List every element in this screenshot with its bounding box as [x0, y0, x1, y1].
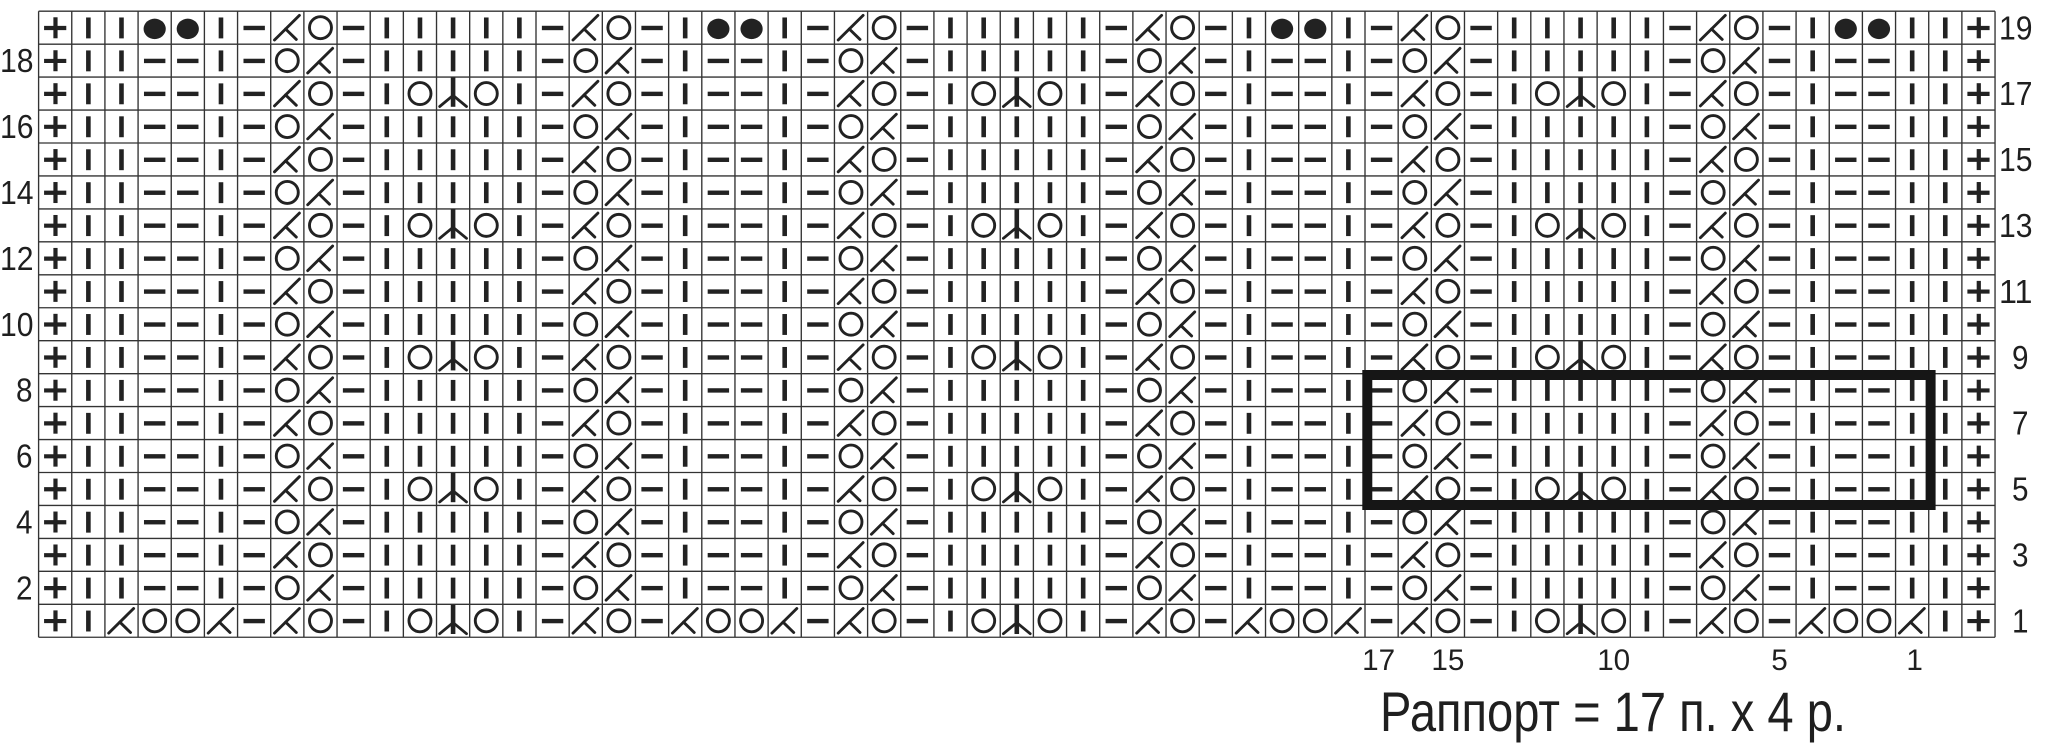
svg-text:3: 3: [2012, 538, 2029, 575]
svg-text:7: 7: [2012, 406, 2029, 443]
svg-text:5: 5: [2012, 472, 2029, 509]
svg-text:16: 16: [0, 109, 34, 146]
svg-text:1: 1: [1906, 644, 1923, 677]
svg-text:18: 18: [0, 43, 34, 80]
svg-text:11: 11: [1999, 274, 2033, 311]
svg-text:5: 5: [1771, 644, 1788, 677]
svg-text:2: 2: [16, 570, 33, 607]
svg-text:19: 19: [1999, 10, 2033, 47]
svg-text:12: 12: [0, 241, 34, 278]
svg-text:8: 8: [16, 373, 33, 410]
svg-text:4: 4: [16, 505, 33, 542]
svg-text:17: 17: [1999, 76, 2033, 113]
svg-text:17: 17: [1362, 644, 1395, 677]
svg-text:10: 10: [1597, 644, 1630, 677]
svg-text:Раппорт = 17 п. х 4 р.: Раппорт = 17 п. х 4 р.: [1380, 681, 1846, 743]
svg-text:10: 10: [0, 307, 34, 344]
svg-text:15: 15: [1999, 142, 2033, 179]
svg-text:6: 6: [16, 439, 33, 476]
svg-text:14: 14: [0, 175, 34, 212]
svg-text:13: 13: [1999, 208, 2033, 245]
svg-text:9: 9: [2012, 340, 2029, 377]
svg-text:15: 15: [1431, 644, 1464, 677]
svg-text:1: 1: [2012, 603, 2029, 640]
